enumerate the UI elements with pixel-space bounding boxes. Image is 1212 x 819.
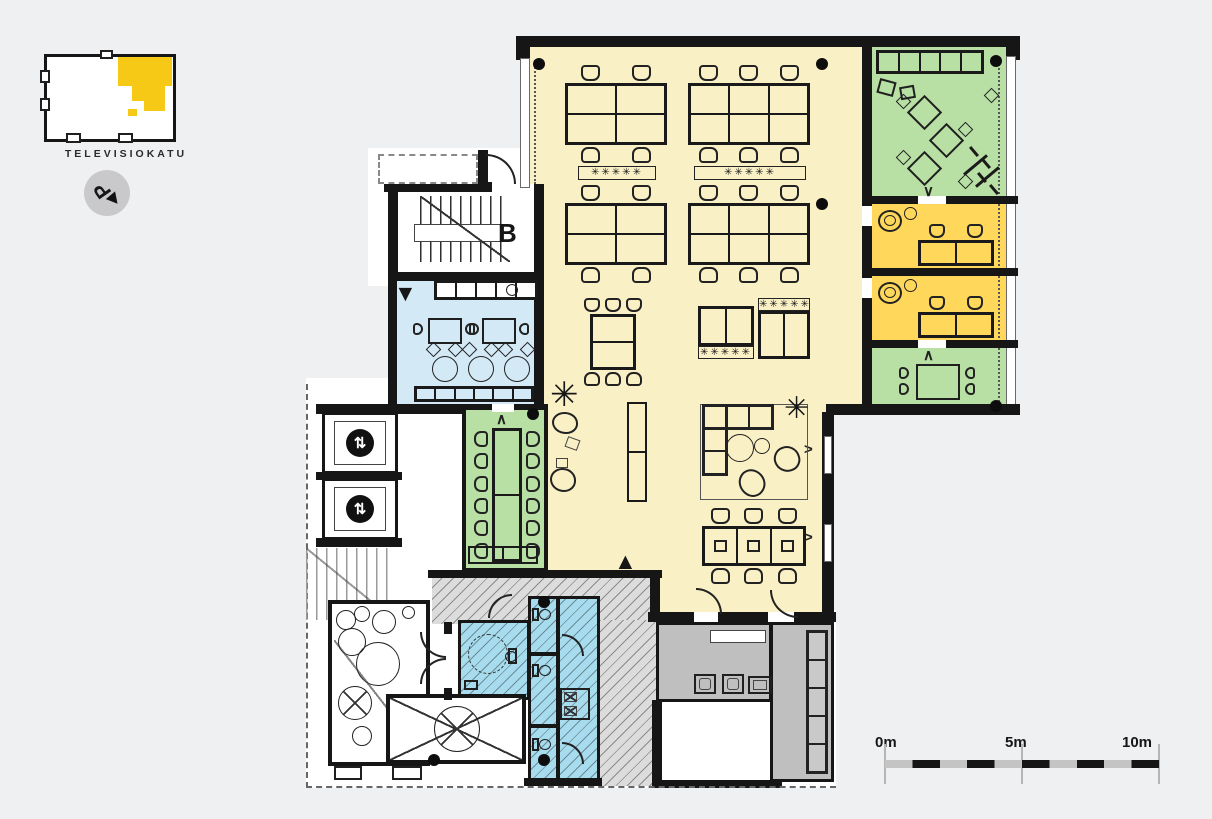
curtain-line	[534, 60, 536, 184]
cabinet-cell	[961, 52, 982, 72]
meeting-table	[916, 364, 960, 400]
shelving-unit	[698, 306, 754, 346]
desk-cell	[616, 205, 665, 234]
wall	[528, 724, 560, 728]
bench-cell	[435, 388, 454, 400]
desk-pair	[918, 312, 994, 338]
desk-cell	[690, 234, 729, 263]
chair	[778, 568, 797, 584]
desk-pair	[918, 240, 994, 266]
meeting-table-6	[590, 314, 636, 370]
shelf-cell	[700, 308, 726, 344]
locator-highlight	[144, 100, 165, 111]
counter-cell	[456, 282, 476, 298]
chair	[605, 372, 621, 386]
washer-inner	[727, 678, 739, 690]
wall	[652, 700, 662, 788]
column	[538, 596, 550, 608]
desk-cell	[567, 85, 616, 114]
desk-cell	[729, 85, 768, 114]
column	[538, 754, 550, 766]
wall	[516, 36, 530, 60]
chair	[632, 185, 651, 201]
desk-cell	[690, 85, 729, 114]
sink-icon	[506, 284, 518, 296]
chair	[584, 298, 600, 312]
chair	[474, 476, 488, 492]
chair	[526, 431, 540, 447]
desk-cell	[920, 314, 956, 336]
locator-highlight	[132, 84, 165, 101]
desk-cell	[690, 114, 729, 143]
chair	[967, 224, 983, 238]
chair	[626, 372, 642, 386]
floor-plan-page: TELEVISIOKATU P > >	[0, 0, 1212, 819]
elevator-icon: ⇅	[346, 429, 374, 457]
table-cell	[592, 342, 634, 368]
column	[527, 408, 539, 420]
chair	[526, 498, 540, 514]
shelf	[710, 630, 766, 643]
window-band	[824, 524, 832, 562]
chair	[780, 185, 799, 201]
chair	[699, 147, 718, 163]
chair	[744, 508, 763, 524]
chair	[584, 372, 600, 386]
cafe-table	[482, 318, 516, 344]
desk-cell	[616, 234, 665, 263]
bench-cell	[455, 388, 474, 400]
desk-cell	[567, 205, 616, 234]
counter-cell	[516, 282, 536, 298]
chair-row	[688, 268, 810, 282]
kitchen-counter	[434, 280, 538, 300]
cafe-table	[428, 318, 462, 344]
cabinet-row	[876, 50, 984, 74]
armchair	[552, 412, 578, 434]
locator-map	[44, 54, 176, 142]
locator-notch	[40, 70, 50, 83]
locker-cell	[808, 716, 826, 744]
desk-cell	[616, 85, 665, 114]
chair	[632, 65, 651, 81]
table-cell	[704, 528, 737, 564]
chair	[699, 185, 718, 201]
desk-cell	[769, 205, 808, 234]
desk-cell	[729, 114, 768, 143]
north-arrow-icon: P	[84, 170, 130, 216]
chair	[632, 147, 651, 163]
sink-icon	[464, 680, 478, 690]
bench-cell	[416, 388, 435, 400]
turning-circle	[468, 634, 508, 674]
balcony-dashed	[378, 154, 478, 184]
chair	[526, 453, 540, 469]
chair	[581, 185, 600, 201]
work-table-row	[702, 526, 806, 566]
cabinet-cell	[920, 52, 941, 72]
chair-column	[472, 428, 490, 562]
locker-column	[806, 630, 828, 774]
chair	[965, 383, 975, 395]
table-cell	[737, 528, 770, 564]
cabinet-cell	[940, 52, 961, 72]
chair-row	[565, 186, 667, 200]
entry-arrow: ▼	[394, 282, 417, 305]
round-table	[432, 356, 458, 382]
table-cell	[592, 316, 634, 342]
chair	[605, 298, 621, 312]
chair-row	[688, 186, 810, 200]
window-band	[824, 436, 832, 474]
desk-cell	[567, 234, 616, 263]
door-opening	[862, 206, 872, 226]
sideboard	[468, 546, 538, 564]
sofa-vertical	[702, 404, 728, 476]
desk-bank	[565, 203, 667, 265]
stair-direction-line	[420, 196, 510, 262]
desk-cell	[769, 114, 808, 143]
toilet-bowl-icon	[539, 665, 551, 676]
locker-cell	[808, 688, 826, 716]
window-band	[520, 58, 530, 188]
desk-cell	[769, 234, 808, 263]
hatched-common-zone	[600, 620, 656, 786]
shelf-cell	[726, 308, 752, 344]
chair	[780, 147, 799, 163]
planter-box: ✳✳✳✳✳	[698, 346, 754, 359]
armchair	[550, 468, 576, 492]
locator-notch	[66, 133, 81, 143]
round-table	[468, 356, 494, 382]
duct-circle	[354, 606, 370, 622]
chair	[711, 508, 730, 524]
desk-cell	[729, 205, 768, 234]
chair	[526, 476, 540, 492]
locator-notch	[100, 50, 113, 59]
chair	[699, 267, 718, 283]
column	[816, 198, 828, 210]
basin-icon	[564, 706, 577, 716]
chair	[739, 65, 758, 81]
property-line	[306, 786, 836, 788]
planter-box: ✳✳✳✳✳	[578, 166, 656, 180]
chair	[474, 431, 488, 447]
desk-cell	[956, 242, 992, 264]
street-label: TELEVISIOKATU	[46, 148, 206, 160]
shelf-cell	[784, 313, 808, 357]
chair-row	[704, 568, 804, 584]
chair	[699, 65, 718, 81]
planter-box: ✳✳✳✳✳	[694, 166, 806, 180]
chair	[626, 298, 642, 312]
chair	[967, 296, 983, 310]
locker-cell	[808, 744, 826, 772]
chair	[739, 185, 758, 201]
plinth	[334, 766, 362, 780]
chair	[780, 65, 799, 81]
chair-row	[582, 372, 644, 386]
wall	[862, 268, 1018, 276]
tall-cabinet	[627, 402, 647, 502]
side-table	[556, 458, 568, 468]
table-cell	[494, 430, 520, 495]
wall	[528, 652, 560, 656]
cabinet-cell	[899, 52, 920, 72]
locator-highlight	[128, 109, 137, 116]
bench-cell	[493, 388, 512, 400]
planter-box: ✳✳✳✳✳	[758, 298, 810, 311]
desk-cell	[616, 114, 665, 143]
chair	[581, 267, 600, 283]
desk-cell	[729, 234, 768, 263]
chair	[581, 147, 600, 163]
wall	[524, 778, 602, 786]
sofa-cushion	[727, 406, 750, 428]
printer-inner	[753, 680, 767, 690]
wall	[516, 36, 1020, 47]
chair-row	[582, 298, 644, 312]
chair-row	[918, 224, 994, 238]
column	[533, 58, 545, 70]
column	[990, 400, 1002, 412]
coffee-table	[726, 434, 754, 462]
chair	[474, 498, 488, 514]
toilet-bowl-icon	[539, 609, 551, 620]
chair	[739, 267, 758, 283]
side-table-round	[904, 279, 917, 292]
toilet-bowl-icon	[539, 739, 551, 750]
column	[816, 58, 828, 70]
locker-cell	[808, 632, 826, 660]
basin-icon	[564, 692, 577, 702]
cabinet-cell	[628, 452, 646, 501]
scale-bar	[885, 760, 1159, 768]
window-band	[1006, 56, 1016, 406]
door-swing-mark: ∨	[923, 184, 934, 199]
toilet-icon	[532, 608, 539, 621]
sofa-cushion	[704, 429, 726, 452]
chair	[929, 224, 945, 238]
chair-row	[688, 66, 810, 80]
cabinet-cell	[878, 52, 899, 72]
shelving-unit	[758, 311, 810, 359]
side-table-round	[904, 207, 917, 220]
fan-icon	[402, 606, 415, 619]
wall	[444, 688, 452, 700]
wall	[388, 190, 398, 280]
chair-row	[565, 148, 667, 162]
chair	[778, 508, 797, 524]
chair	[474, 520, 488, 536]
chair-row	[918, 296, 994, 310]
duct-circle	[336, 610, 356, 630]
chair	[744, 568, 763, 584]
scale-label-10: 10m	[1122, 734, 1152, 751]
locator-notch	[40, 98, 50, 111]
duct-circle	[372, 610, 396, 634]
cabinet-cell	[503, 547, 537, 563]
locator-highlight	[118, 57, 172, 86]
conference-table	[492, 428, 522, 562]
counter-cell	[476, 282, 496, 298]
toilet-icon	[532, 664, 539, 677]
stair-label: B	[498, 218, 517, 249]
desk-bank	[688, 203, 810, 265]
chair-row	[688, 148, 810, 162]
desk-cell	[567, 114, 616, 143]
counter-cell	[436, 282, 456, 298]
plant-icon: ✳	[550, 378, 579, 412]
lounge-chair-cushion	[884, 215, 896, 226]
entry-arrow: ▲	[614, 550, 637, 573]
curtain-line	[998, 60, 1000, 402]
monitor-icon	[781, 540, 794, 552]
desk-bank	[565, 83, 667, 145]
locator-notch	[118, 133, 133, 143]
wall	[862, 44, 872, 412]
chair	[711, 568, 730, 584]
elevator-icon: ⇅	[346, 495, 374, 523]
column	[428, 754, 440, 766]
cabinet-cell	[469, 547, 503, 563]
kitchen-bench	[414, 386, 534, 402]
chair-column	[524, 428, 542, 562]
plinth	[392, 766, 422, 780]
monitor-icon	[747, 540, 760, 552]
chair	[519, 323, 529, 335]
chair	[780, 267, 799, 283]
sofa-cushion	[704, 406, 726, 429]
desk-cell	[769, 85, 808, 114]
table-cell	[771, 528, 804, 564]
coffee-table	[754, 438, 770, 454]
bench-cell	[513, 388, 532, 400]
washer-inner	[699, 678, 711, 690]
toilet-bowl-icon	[505, 651, 517, 662]
chair-row	[565, 66, 667, 80]
chair	[581, 65, 600, 81]
wall	[648, 612, 836, 622]
door-opening	[862, 278, 872, 298]
chair	[739, 147, 758, 163]
shelf-cell	[760, 313, 784, 357]
desk-cell	[690, 205, 729, 234]
round-table	[504, 356, 530, 382]
monitor-icon	[714, 540, 727, 552]
chair	[632, 267, 651, 283]
chair	[474, 453, 488, 469]
chair-row	[565, 268, 667, 282]
desk-cell	[920, 242, 956, 264]
chair	[929, 296, 945, 310]
bench-cell	[474, 388, 493, 400]
desk-bank	[688, 83, 810, 145]
column	[990, 55, 1002, 67]
shaft-circle	[434, 706, 480, 752]
chair	[526, 520, 540, 536]
door-swing-mark: ∧	[923, 348, 934, 363]
plant-icon: ✳	[784, 394, 809, 424]
lounge-chair-cushion	[884, 287, 896, 298]
storage-room-white	[660, 704, 768, 778]
sofa-cushion	[704, 451, 726, 474]
toilet-icon	[532, 738, 539, 751]
desk-cell	[956, 314, 992, 336]
scale-label-5: 5m	[1005, 734, 1027, 751]
chair	[965, 367, 975, 379]
locker-cell	[808, 660, 826, 688]
sofa-cushion	[749, 406, 772, 428]
cabinet-cell	[628, 403, 646, 452]
chair-row	[704, 508, 804, 524]
door-swing-mark: ∧	[496, 412, 507, 427]
